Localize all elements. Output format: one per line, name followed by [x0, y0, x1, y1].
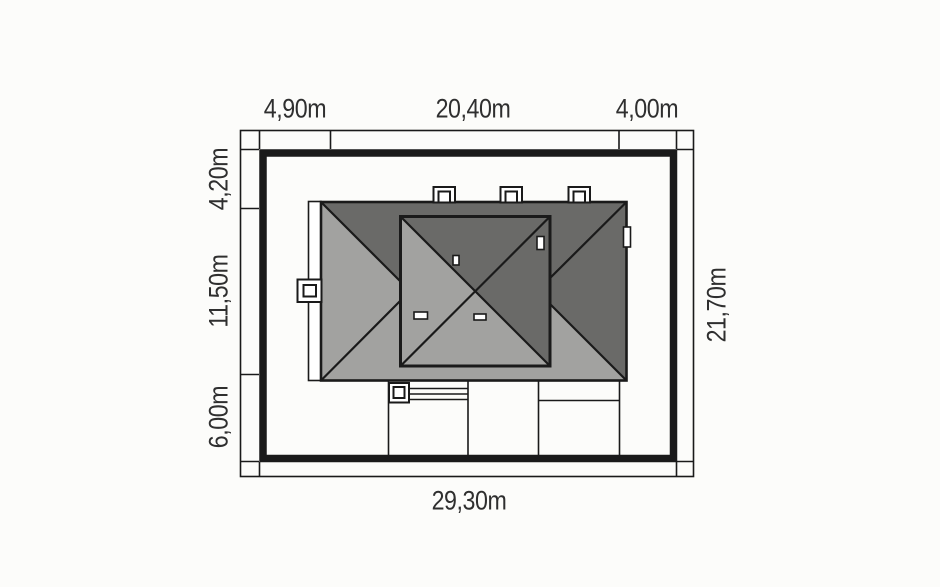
- dim-label-top-1: 4,90m: [264, 94, 326, 125]
- dim-label-top-3: 4,00m: [616, 94, 678, 125]
- roof-window-icon-1: [453, 256, 459, 266]
- chimney-icon-bottom: [389, 383, 409, 403]
- steps-lines: [409, 389, 468, 400]
- chimney-icon-top-3: [569, 187, 591, 203]
- left-band-ticks: [241, 150, 260, 462]
- dim-label-top-2: 20,40m: [436, 94, 511, 125]
- tower-roof: [401, 217, 551, 367]
- chimney-icon-top-1: [434, 187, 456, 203]
- roof-vent-icon: [624, 227, 631, 247]
- driveway-lines: [539, 381, 620, 456]
- dim-label-bottom: 29,30m: [432, 486, 507, 517]
- dim-label-left-2: 11,50m: [204, 254, 235, 327]
- chimney-icon-left: [298, 280, 322, 303]
- roof-window-icon-4: [414, 312, 428, 319]
- dim-label-left-3: 6,00m: [204, 386, 235, 448]
- bottom-band-ticks: [260, 462, 677, 477]
- chimney-icon-top-2: [501, 187, 523, 203]
- site-plan-page: 4,90m 20,40m 4,00m 4,20m 11,50m 6,00m 21…: [0, 0, 940, 587]
- top-band-ticks: [260, 131, 677, 150]
- roof-window-icon-2: [537, 237, 544, 250]
- dim-label-right: 21,70m: [702, 268, 733, 343]
- roof-window-icon-3: [474, 314, 486, 320]
- driveway-outline: [539, 381, 620, 456]
- dim-label-left-1: 4,20m: [204, 148, 235, 210]
- right-band-ticks: [677, 150, 694, 462]
